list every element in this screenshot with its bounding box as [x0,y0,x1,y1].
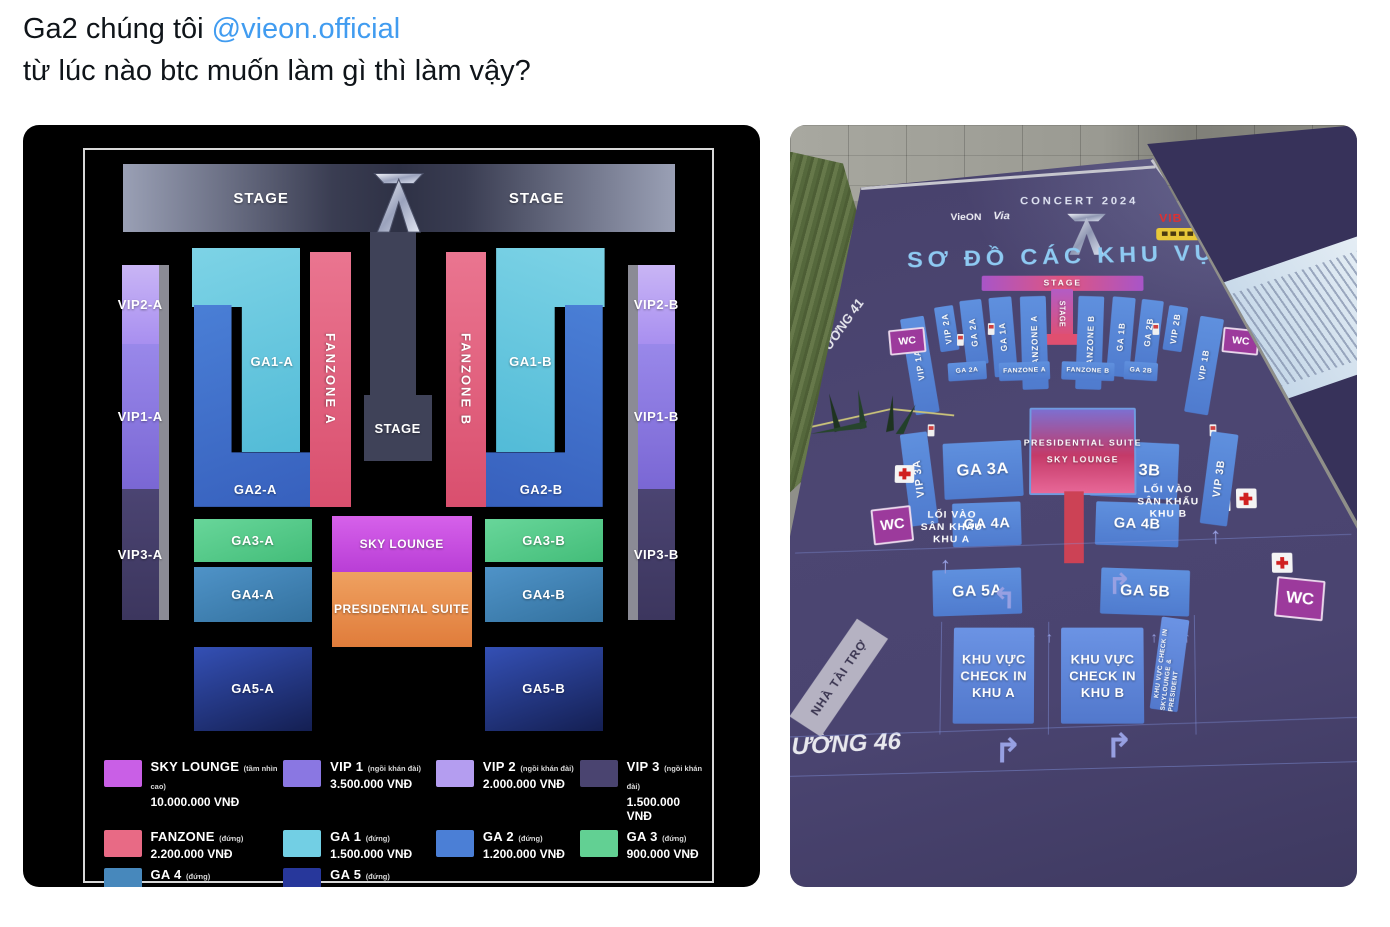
tweet-line-2: từ lúc nào btc muốn làm gì thì làm vậy? [23,50,531,92]
legend-color-swatch [104,760,142,787]
board-title: SƠ ĐỒ CÁC KHU VỰC [906,240,1240,274]
legend-zone-price: 2.200.000 VNĐ [151,847,244,861]
legend-zone-price: 500.000 VNĐ [330,885,402,887]
photo-midrow-fanzone-b: FANZONE B [1061,361,1114,381]
zone-ga4-b: GA4-B [485,567,603,622]
venue-board-photo[interactable]: VieON Via CONCERT 2024 VIB SƠ ĐỒ CÁC KHU… [790,125,1357,887]
legend-item: FANZONE (đứng) 2.200.000 VNĐ [104,828,284,861]
tweet-line-1: Ga2 chúng tôi @vieon.official [23,8,531,50]
legend-zone-note: (đứng) [366,834,390,843]
entry-label-b: LỐI VÀO SÂN KHẤU KHU B [1137,484,1199,521]
zone-ga3-a: GA3-A [194,519,312,561]
legend-color-swatch [580,830,618,857]
zone-ga3-b: GA3-B [485,519,603,561]
zone-vip2-b: VIP2-B [638,265,675,345]
wc-box-lower-left: WC [871,505,915,545]
legend-zone-name: VIP 1 [330,759,363,774]
legend-zone-price: 10.000.000 VNĐ [151,795,284,809]
board-guide-line [940,622,943,734]
photo-stage-runway: STAGE [1051,289,1073,338]
legend-zone-name: GA 1 [330,829,361,844]
legend-item: VIP 3 (ngồi khán đài) 1.500.000 VNĐ [580,758,703,823]
zone-vip3-a: VIP3-A [122,489,159,621]
turn-right-arrow-icon: ↱ [1107,568,1132,602]
photo-runway-stub [1065,491,1084,563]
vieon-logo: VieON [950,212,981,223]
legend-zone-name: VIP 2 [483,759,516,774]
stand-rail-right [628,265,638,621]
legend-zone-note: (đứng) [662,834,686,843]
legend-zone-note: (đứng) [518,834,542,843]
gate-marker [1153,323,1160,335]
zone-fanzone-a: FANZONE A [310,252,350,507]
legend-zone-name: GA 5 [330,867,361,882]
board-guide-line [1048,622,1049,734]
zone-ga5-a: GA5-A [194,647,312,732]
checkin-arrow-b-icon: ↱ [1105,727,1134,767]
legend-zone-name: GA 4 [151,867,182,882]
wc-box-upper-left: WC [888,327,927,356]
legend-zone-note: (đứng) [219,834,243,843]
stage-label-left: STAGE [233,190,289,207]
turn-left-arrow-icon: ↰ [991,582,1016,616]
legend-item: GA 5 (đứng) 500.000 VNĐ [283,866,436,887]
first-aid-icon [1236,489,1257,509]
stage-label-right: STAGE [509,190,565,207]
legend-item: VIP 2 (ngồi khán đài) 2.000.000 VNĐ [436,758,580,823]
legend-zone-price: 3.500.000 VNĐ [330,777,421,791]
photo-zone-vip2a: VIP 2A [934,305,960,352]
checkin-box-a: KHU VỰC CHECK IN KHU A [953,628,1034,724]
zone-ga4-a: GA4-A [194,567,312,622]
legend-color-swatch [580,760,618,787]
legend-zone-price: 1.500.000 VNĐ [627,795,703,823]
legend-zone-price: 700.000 VNĐ [151,885,223,887]
stand-rail-left [159,265,169,621]
legend-color-swatch [283,868,321,887]
photo-zone-vip3b: VIP 3B [1200,431,1239,526]
photo-presidential-sky-box: PRESIDENTIAL SUITE SKY LOUNGE [1029,408,1136,495]
board-guide-line [790,761,1357,777]
zone-ga5-b: GA5-B [485,647,603,732]
zone-fanzone-b: FANZONE B [446,252,486,507]
legend-zone-name: GA 3 [627,829,658,844]
photo-zone-vip2b: VIP 2B [1162,305,1188,352]
legend-zone-name: VIP 3 [627,759,660,774]
legend-item: GA 2 (đứng) 1.200.000 VNĐ [436,828,580,861]
checkin-arrow-a-icon: ↱ [993,731,1022,771]
legend-zone-note: (đứng) [366,872,390,881]
up-arrow-icon: ↑ [939,553,951,580]
zone-vip2-a: VIP2-A [122,265,159,345]
checkin-box-b: KHU VỰC CHECK IN KHU B [1061,628,1145,724]
legend-item: VIP 1 (ngồi khán đài) 3.500.000 VNĐ [283,758,436,823]
suite-line-2: SKY LOUNGE [1047,455,1119,464]
entry-label-a: LỐI VÀO SÂN KHẤU KHU A [920,509,983,546]
photo-zone-vip1b: VIP 1B [1184,315,1224,414]
wc-box-lower-right: WC [1274,576,1326,621]
legend-color-swatch [283,760,321,787]
tweet-body: Ga2 chúng tôi @vieon.official từ lúc nào… [23,8,531,92]
legend-zone-note: (đứng) [186,872,210,881]
legend-zone-price: 900.000 VNĐ [627,847,699,861]
sponsor-band: NHÀ TÀI TRỢ [790,619,888,737]
legend-color-swatch [283,830,321,857]
palm-leaf [798,365,965,463]
seatmap-frame: STAGE STAGE STAGE VIP2-A VIP1-A VIP3-A V… [83,148,714,884]
stage-center-box: STAGE [364,395,432,462]
legend-zone-name: SKY LOUNGE [151,759,240,774]
gate-marker [988,323,995,335]
gate-marker [957,334,964,346]
mention-link[interactable]: @vieon.official [212,13,401,45]
legend-color-swatch [436,760,474,787]
up-arrow-icon: ↑ [1210,524,1222,551]
seatmap-image[interactable]: STAGE STAGE STAGE VIP2-A VIP1-A VIP3-A V… [23,125,760,887]
via-logo: Via [993,210,1010,222]
zone-vip1-a: VIP1-A [122,344,159,488]
board-guide-line [1194,615,1197,734]
photo-zone-ga2a: GA 2A [960,299,989,366]
sponsor-yellow-logo [1157,228,1200,240]
first-aid-icon [895,465,914,483]
legend-item: SKY LOUNGE (tầm nhìn cao) 10.000.000 VNĐ [104,758,284,823]
legend-item: GA 3 (đứng) 900.000 VNĐ [580,828,703,861]
legend-zone-note: (ngồi khán đài) [520,764,573,773]
legend-zone-name: FANZONE [151,829,215,844]
concert-arrow-logo-icon [363,145,434,262]
legend-color-swatch [104,868,142,887]
concert-2024-wordmark: CONCERT 2024 [1020,195,1138,207]
first-aid-icon [1271,553,1293,573]
legend-zone-price: 1.500.000 VNĐ [330,847,412,861]
zone-vip1-b: VIP1-B [638,344,675,488]
legend-zone-price: 1.200.000 VNĐ [483,847,565,861]
legend-zone-price: 2.000.000 VNĐ [483,777,574,791]
zone-vip3-b: VIP3-B [638,489,675,621]
suite-line-1: PRESIDENTIAL SUITE [1024,438,1142,447]
photo-midrow-ga2b: GA 2B [1124,361,1159,381]
zone-presidential-suite: PRESIDENTIAL SUITE [332,572,472,647]
stage-center-label: STAGE [374,421,420,436]
legend-color-swatch [104,830,142,857]
zone-sky-lounge: SKY LOUNGE [332,516,472,572]
legend-zone-note: (ngồi khán đài) [368,764,421,773]
legend-item: GA 4 (đứng) 700.000 VNĐ [104,866,284,887]
photo-midrow-fanzone-a: FANZONE A [999,361,1051,381]
legend-item: GA 1 (đứng) 1.500.000 VNĐ [283,828,436,861]
legend-color-swatch [436,830,474,857]
vib-logo: VIB [1159,211,1182,224]
legend: SKY LOUNGE (tầm nhìn cao) 10.000.000 VNĐ… [104,758,703,872]
tweet-text-prefix: Ga2 chúng tôi [23,13,212,45]
legend-zone-name: GA 2 [483,829,514,844]
